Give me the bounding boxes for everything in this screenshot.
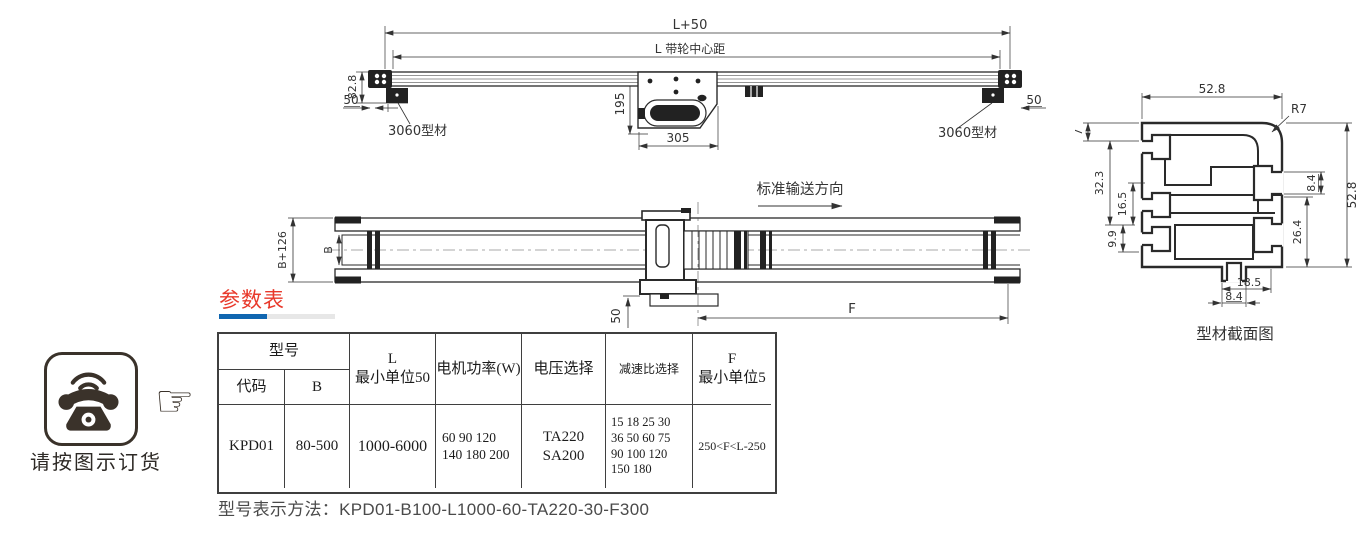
header-motor-power: 电机功率(W) — [436, 334, 522, 405]
model-designation-note: 型号表示方法：KPD01-B100-L1000-60-TA220-30-F300 — [218, 495, 649, 520]
conveying-direction-label: 标准输送方向 — [757, 181, 844, 198]
cell-ratio-line2: 36 50 60 75 — [611, 431, 670, 447]
dim-profile-height: 52.8 — [1345, 182, 1359, 209]
page: L+50 L 带轮中心距 82.8 50 195 305 50 3060型材 3… — [0, 0, 1370, 537]
cell-voltage-line1: TA220 — [543, 428, 584, 447]
params-title: 参数表 — [219, 284, 285, 314]
plan-view-drawing: 标准输送方向 — [240, 168, 1050, 338]
parameter-table: 型号 L 最小单位50 电机功率(W) 电压选择 减速比选择 F 最小单位5 代… — [217, 332, 777, 494]
cell-code: KPD01 — [219, 405, 285, 488]
dim-profile-8-4-bottom: 8.4 — [1225, 290, 1243, 303]
cell-voltage-line2: SA200 — [543, 447, 585, 466]
cell-b-range: 80-500 — [285, 405, 350, 488]
dim-motor-width: 305 — [667, 131, 690, 145]
cell-motor-power: 60 90 120 140 180 200 — [436, 405, 522, 488]
header-length-line2: 最小单位50 — [355, 369, 430, 388]
header-f-line1: F — [728, 350, 736, 369]
header-b: B — [285, 370, 350, 405]
title-underline-gray — [267, 314, 335, 319]
cell-f-range: 250<F<L-250 — [693, 405, 771, 488]
side-view-drawing: L+50 L 带轮中心距 82.8 50 195 305 50 3060型材 3… — [240, 8, 1050, 168]
header-code: 代码 — [219, 370, 285, 405]
label-profile-3060-right: 3060型材 — [938, 126, 997, 141]
dim-offset-right: 50 — [1026, 93, 1041, 107]
dim-pulley-center-distance: L 带轮中心距 — [655, 41, 726, 56]
extrusion-outline — [1140, 123, 1283, 282]
dim-profile-16-5: 16.5 — [1116, 192, 1129, 217]
header-f-line2: 最小单位5 — [698, 369, 766, 388]
label-profile-3060-left: 3060型材 — [388, 124, 447, 139]
dim-profile-top-width: 52.8 — [1199, 82, 1226, 96]
header-f: F 最小单位5 — [693, 334, 771, 405]
dim-width-belt: B — [322, 246, 335, 254]
dim-profile-32-3: 32.3 — [1093, 171, 1106, 196]
drive-motor-housing — [638, 72, 717, 128]
cell-motor-power-line1: 60 90 120 — [442, 430, 496, 447]
dim-motor-offset: 50 — [609, 308, 623, 323]
pulley-left — [368, 70, 392, 88]
phone-icon — [46, 354, 131, 439]
cell-ratio: 15 18 25 30 36 50 60 75 90 100 120 150 1… — [606, 405, 693, 488]
dim-f: F — [848, 301, 856, 317]
dim-motor-height: 195 — [613, 93, 627, 116]
cell-motor-power-line2: 140 180 200 — [442, 447, 510, 464]
cell-ratio-line3: 90 100 120 — [611, 447, 667, 463]
cell-ratio-line1: 15 18 25 30 — [611, 415, 670, 431]
header-motor-power-label: 电机功率(W) — [436, 360, 520, 379]
dim-profile-7: 7 — [1075, 129, 1085, 136]
header-voltage-label: 电压选择 — [533, 360, 593, 379]
header-ratio: 减速比选择 — [606, 334, 693, 405]
cell-l-range: 1000-6000 — [350, 405, 436, 488]
dim-profile-radius: R7 — [1291, 102, 1307, 116]
header-length-line1: L — [388, 350, 397, 369]
cell-voltage: TA220 SA200 — [522, 405, 606, 488]
header-length: L 最小单位50 — [350, 334, 436, 405]
cell-ratio-line4: 150 180 — [611, 462, 652, 478]
header-ratio-label: 减速比选择 — [619, 362, 679, 377]
title-underline-accent — [219, 314, 267, 319]
dim-offset-left: 50 — [343, 93, 358, 107]
dim-total-length: L+50 — [673, 18, 708, 33]
dim-profile-26-4: 26.4 — [1291, 220, 1304, 245]
dim-profile-8-4-right: 8.4 — [1305, 174, 1318, 192]
profile-section-drawing: 52.8 R7 7 32.3 16.5 9.9 8.4 52.8 26.4 18… — [1075, 55, 1370, 355]
profile-caption: 型材截面图 — [1196, 325, 1274, 343]
order-caption: 请按图示订货 — [30, 446, 162, 475]
header-model: 型号 — [219, 334, 350, 370]
phone-icon-box — [44, 352, 138, 446]
dim-width-outer: B+126 — [276, 231, 289, 269]
pointing-hand-icon: ☞ — [155, 380, 194, 424]
dim-profile-9-9: 9.9 — [1106, 230, 1119, 248]
header-voltage: 电压选择 — [522, 334, 606, 405]
pulley-right — [998, 70, 1022, 88]
dim-profile-18-5: 18.5 — [1237, 276, 1262, 289]
